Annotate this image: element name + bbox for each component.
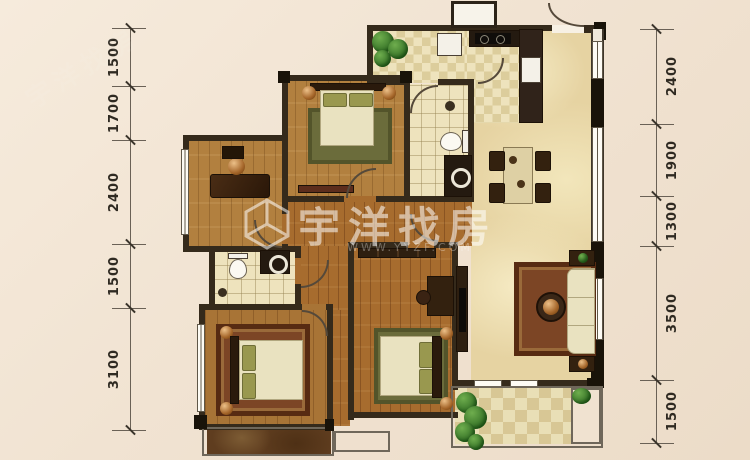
shower-drain-icon — [269, 255, 288, 274]
floor-plan-image: 1500 1700 2400 1500 3100 2400 1900 1300 … — [0, 0, 750, 460]
window — [592, 41, 603, 79]
shower-drain-icon — [451, 168, 471, 188]
wall-pier — [400, 71, 412, 83]
wall-pier — [194, 415, 207, 429]
table-lamp-icon — [578, 359, 588, 369]
dimension-label: 1700 — [107, 75, 125, 151]
watermark-faint: 宇洋找房 — [18, 17, 146, 116]
door-gap — [302, 304, 326, 310]
sink-icon — [218, 288, 227, 297]
toilet — [229, 259, 247, 279]
balcony1-parapet — [202, 427, 334, 456]
chair-icon — [416, 290, 431, 305]
stove-burner-icon — [496, 35, 505, 44]
wall — [404, 75, 410, 200]
wall-pier — [591, 79, 604, 127]
dimension-label: 2400 — [665, 38, 683, 114]
dimension-label: 1500 — [665, 373, 683, 449]
dimension-label: 1300 — [665, 183, 683, 259]
wall — [282, 75, 408, 81]
wall — [209, 246, 215, 310]
plant-icon — [572, 388, 591, 404]
plant-icon — [468, 434, 484, 450]
wall-pier — [325, 419, 334, 431]
bedside-lamp — [440, 397, 453, 410]
coffee-table-top — [543, 299, 559, 315]
watermark-url: WWW.YYZF.COM — [310, 241, 510, 254]
tableware-icon — [517, 180, 525, 188]
corridor-floor-lower — [330, 310, 350, 426]
bedside-lamp — [440, 327, 453, 340]
bedroom3-desk — [427, 276, 454, 316]
window — [592, 127, 603, 242]
wall — [183, 135, 285, 141]
wall — [348, 412, 458, 418]
pillow — [242, 373, 256, 399]
bedroom2-headboard — [230, 336, 239, 404]
sink-icon — [445, 101, 455, 111]
desk-lamp — [228, 158, 245, 175]
toilet — [440, 132, 462, 151]
potted-plant-icon — [578, 253, 588, 263]
wall — [348, 242, 354, 420]
dining-chair — [489, 151, 505, 171]
fridge — [521, 57, 541, 83]
bedside-lamp — [382, 86, 396, 100]
bedroom3-headboard — [432, 336, 442, 398]
watermark: 宇洋找房 WWW.YYZF.COM — [240, 194, 530, 256]
plant-icon — [388, 39, 408, 59]
pillow — [419, 342, 433, 368]
stove-burner-icon — [480, 35, 489, 44]
pillow — [419, 369, 433, 394]
window — [181, 149, 189, 235]
washing-machine — [437, 33, 462, 56]
wall-pier — [278, 71, 290, 83]
entry-door-arc — [548, 3, 584, 27]
watermark-logo-icon — [240, 197, 294, 251]
pillow — [242, 345, 256, 371]
balcony1-step — [334, 431, 390, 452]
tv-icon — [459, 288, 466, 332]
tableware-icon — [509, 156, 517, 164]
toilet-tank — [462, 130, 469, 153]
dimension-label: 3500 — [665, 275, 683, 351]
pillow — [349, 93, 373, 107]
dimension-label: 1500 — [107, 238, 125, 314]
sofa — [567, 268, 595, 354]
window — [197, 324, 205, 412]
study-stool — [222, 146, 244, 159]
flue-box — [451, 1, 497, 28]
wall — [327, 304, 333, 430]
dimension-label: 2400 — [107, 154, 125, 230]
dining-chair — [535, 183, 551, 203]
dining-chair — [535, 151, 551, 171]
bedside-lamp — [302, 86, 316, 100]
plant-icon — [374, 50, 391, 67]
dimension-label: 3100 — [107, 331, 125, 407]
pillow — [323, 93, 347, 107]
